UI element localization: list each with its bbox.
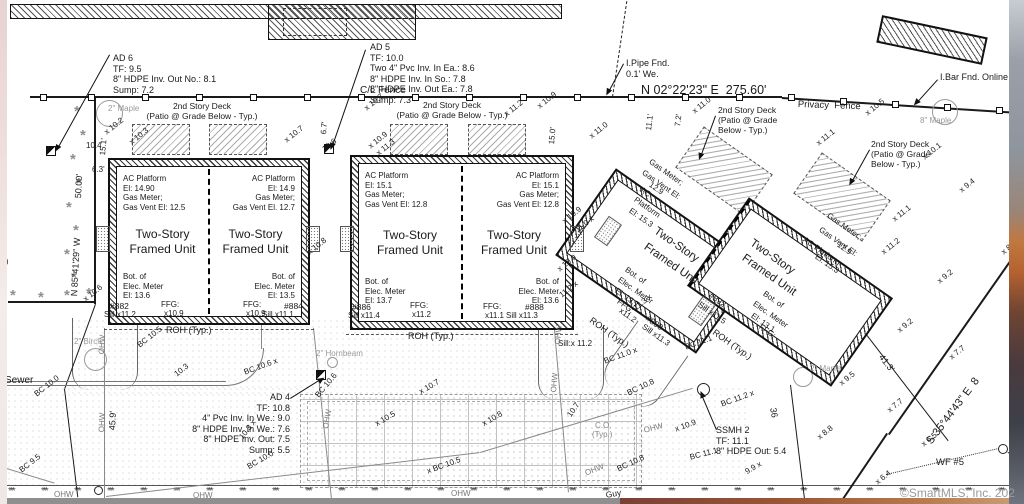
unit-888: AC PlatformEl: 15.1Gas Meter;Gas Vent El… — [463, 164, 565, 321]
text-line: TF: 10.0 — [370, 53, 475, 64]
map-label: Sill x11.1 — [262, 311, 294, 319]
text-line: Gas Vent El: 12.8 — [469, 200, 559, 210]
deck-label: 2nd Story Deck(Patio @ Grade Below - Typ… — [116, 101, 288, 121]
map-label: ROH (Typ.) — [408, 332, 454, 341]
property-tie-line — [612, 1, 627, 97]
grass-icon: *** — [404, 487, 410, 497]
map-label: FFG: — [483, 303, 501, 311]
map-label: x 10.7 — [283, 125, 305, 145]
sewer-line — [0, 381, 226, 386]
annotation-ad5: AD 5TF: 10.0Two 4" Pvc Inv. In Ea.: 8.68… — [370, 42, 475, 106]
text-line: Elec. Meter — [365, 287, 455, 297]
existing-deck-outline — [283, 8, 347, 36]
map-label: FFG: — [161, 301, 179, 309]
map-label: FFG: — [410, 302, 428, 310]
unit-name: Two-StoryFramed Unit — [216, 227, 295, 257]
map-label: 7.2' — [674, 113, 683, 127]
annotation-ad4: AD 4TF: 10.84" Pvc Inv. In We.: 9.08" HD… — [172, 392, 290, 456]
fence-post-icon — [88, 94, 95, 101]
text-line: Framed Unit — [216, 242, 295, 257]
text-line: Two-Story — [123, 227, 202, 242]
text-line: SSMH 2 — [716, 425, 786, 436]
map-label: ROH (Typ.) — [711, 328, 753, 361]
map-label: OHW — [98, 334, 107, 354]
text-line: AD 5 — [370, 42, 475, 53]
leader-arrow — [915, 79, 938, 104]
text-line: 0.1' We. — [626, 69, 670, 80]
text-line: 8" HDPE Inv. Out No.: 8.1 — [113, 74, 216, 85]
tree-label: 2" Maple — [810, 365, 841, 373]
annotation-ibar: I.Bar Fnd. Online — [940, 72, 1008, 83]
tree-label: 2" Hornbeam — [316, 350, 363, 358]
map-label: 45.9' — [108, 411, 118, 431]
map-label: x11.2 — [412, 311, 431, 319]
text-line: Gas Meter; — [365, 190, 455, 200]
map-label: Sill x11.2 — [104, 311, 136, 319]
map-label: x 9.2 — [896, 317, 915, 334]
text-line: (Patio @ Grade Below - Typ.) — [116, 111, 288, 121]
grass-icon: *** — [503, 487, 509, 497]
grass-icon: *** — [767, 487, 773, 497]
unit-884: AC PlatformEl: 14.9Gas Meter;Gas Vent El… — [210, 167, 301, 316]
utility-pole — [94, 486, 103, 495]
lot-line — [790, 385, 806, 504]
ac-platform-note: AC PlatformEl: 15.1Gas Meter;Gas Vent El… — [469, 171, 559, 209]
south-hedge-line — [8, 301, 96, 303]
map-label: x 11.0 — [588, 121, 610, 140]
elec-meter-note: Bot. ofElec. MeterEl: 13.5 — [216, 272, 295, 301]
iron-pin — [998, 444, 1008, 454]
building-882-884: AC PlatformEl: 14.90Gas Meter;Gas Vent E… — [108, 158, 310, 325]
text-line: 4" Pvc Inv. In We.: 9.0 — [172, 413, 290, 424]
text-line: AC Platform — [469, 171, 559, 181]
text-line: Bot. of — [123, 272, 202, 282]
bearing-west: N 85°41'29" W — [70, 238, 82, 297]
text-line: AD 4 — [172, 392, 290, 403]
unit-886: AC PlatformEl: 15.1Gas Meter;Gas Vent El… — [359, 164, 461, 321]
text-line: 2nd Story Deck — [718, 105, 777, 115]
grass-icon: *** — [701, 487, 707, 497]
roof-overhang-line — [346, 334, 578, 335]
grass-icon: *** — [635, 487, 641, 497]
map-label: x 10.5 — [864, 98, 886, 118]
watermark: ©SmartMLS, Inc. 202 — [900, 486, 1015, 500]
text-line: (Patio @ Grade — [718, 115, 777, 125]
text-line: TF: 10.8 — [172, 403, 290, 414]
text-line: AC Platform — [365, 171, 455, 181]
text-line: Framed Unit — [123, 242, 202, 257]
map-label: 12.9 — [835, 241, 852, 256]
ac-platform-pad — [340, 226, 354, 252]
road-edge-line — [0, 485, 1024, 486]
text-line: Framed Unit — [469, 243, 559, 258]
adjacent-photo-right-edge — [1009, 0, 1024, 504]
unit-name: Two-StoryFramed Unit — [123, 227, 202, 257]
map-label: x 6.4 — [874, 469, 893, 486]
text-line: Elec. Meter — [469, 287, 559, 297]
cl-fence-label: C/L Fence — [360, 86, 406, 96]
privacy-fence-label: Privacy Fence — [798, 100, 861, 112]
map-label: 50.00' — [74, 174, 84, 199]
text-line: Gas Meter; — [123, 193, 202, 203]
text-line: Gas Vent El: 12.8 — [365, 200, 455, 210]
ac-platform-note: AC PlatformEl: 15.1Gas Meter;Gas Vent El… — [365, 171, 455, 209]
road-surface — [0, 498, 620, 504]
map-label: OHW — [451, 490, 471, 498]
shrub-icon: * — [70, 152, 76, 167]
map-label: (Typ.) — [592, 431, 612, 439]
text-line: Bot. of — [365, 277, 455, 287]
map-label: 11.1' — [645, 114, 655, 131]
west-boundary-line — [94, 98, 96, 304]
text-line: Elec. Meter — [216, 282, 295, 292]
text-line: I.Pipe Fnd. — [626, 58, 670, 69]
building-interior: AC PlatformEl: 14.90Gas Meter;Gas Vent E… — [116, 166, 302, 317]
text-line: 2nd Story Deck — [116, 101, 288, 111]
text-line: Gas Vent El: 12.5 — [123, 203, 202, 213]
text-line: AD 6 — [113, 53, 216, 64]
annotation-ad6: AD 6TF: 9.58" HDPE Inv. Out No.: 8.1Sump… — [113, 53, 216, 95]
map-label: 36 — [768, 407, 779, 418]
shrub-icon: * — [66, 200, 72, 215]
bearing-north: N 02°22'23" E 275.60' — [641, 84, 766, 97]
unit-name: Two-StoryFramed Unit — [365, 228, 455, 258]
text-line: Two-Story — [365, 228, 455, 243]
grass-icon: *** — [833, 487, 839, 497]
text-line: Bot. of — [216, 272, 295, 282]
grass-icon: *** — [8, 487, 14, 497]
southeast-boundary-line — [840, 433, 888, 503]
text-line: Two-Story — [469, 228, 559, 243]
map-label: OHW — [54, 491, 74, 499]
tree-label: 2" Maple — [108, 105, 139, 113]
map-label: x 11.1 — [815, 128, 837, 147]
text-line: El: 15.1 — [469, 181, 559, 191]
text-line: Gas Meter; — [216, 193, 295, 203]
text-line: Gas Vent El. 12.7 — [216, 203, 295, 213]
deck-outline — [390, 124, 448, 155]
text-line: TF: 9.5 — [113, 64, 216, 75]
annotation-ipipe: I.Pipe Fnd.0.1' We. — [626, 58, 670, 79]
map-label: x10.9 — [164, 310, 184, 318]
shrub-icon: * — [80, 128, 86, 143]
grass-icon: *** — [371, 487, 377, 497]
map-label: 6.3' — [92, 166, 105, 174]
text-line: Sump: 7.2 — [113, 85, 216, 96]
tree-label: 8" Maple — [920, 117, 951, 125]
text-line: Framed Unit — [365, 243, 455, 258]
shrub-icon: * — [64, 247, 70, 262]
text-line: 8" HDPE Out: 5.4 — [716, 446, 786, 457]
ac-platform-note: AC PlatformEl: 14.90Gas Meter;Gas Vent E… — [123, 174, 202, 212]
map-label: x 10.9 — [536, 91, 558, 111]
text-line: AC Platform — [216, 174, 295, 184]
text-line: Bot. of — [469, 277, 559, 287]
tree-icon — [327, 357, 338, 368]
map-label: Sill x11.3 — [506, 312, 538, 320]
text-line: El: 15.1 — [365, 181, 455, 191]
grass-icon: *** — [668, 487, 674, 497]
fence-post-icon — [628, 94, 635, 101]
text-line: AC Platform — [123, 174, 202, 184]
map-label: x 8.8 — [816, 424, 835, 441]
sewer-label: Sewer — [5, 376, 33, 386]
text-line: Two 4" Pvc Inv. In Ea.: 8.6 — [370, 63, 475, 74]
text-line: 8" HDPE Inv. In We.: 7.6 — [172, 424, 290, 435]
text-line: Two-Story — [216, 227, 295, 242]
text-line: El: 14.90 — [123, 184, 202, 194]
map-label: x 11.0 — [691, 96, 713, 115]
grass-icon: *** — [305, 487, 311, 497]
text-line: 8" HDPE Inv. Out: 7.5 — [172, 434, 290, 445]
fence-post-icon — [892, 101, 899, 108]
map-label: ROH (Typ.) — [166, 326, 212, 335]
ac-platform-pad — [96, 226, 110, 252]
grass-icon: *** — [239, 487, 245, 497]
unit-name: Two-StoryFramed Unit — [469, 228, 559, 258]
grass-icon: *** — [338, 487, 344, 497]
map-label: x 11.1 — [891, 204, 913, 223]
deck-label: 2nd Story Deck(Patio @ GradeBelow - Typ.… — [718, 105, 777, 135]
driveway-curb — [538, 325, 604, 400]
fence-post-icon — [40, 94, 47, 101]
text-line: TF: 11.1 — [716, 436, 786, 447]
map-label: x 9.4 — [958, 177, 977, 194]
annotation-ssmh2: SSMH 2TF: 11.18" HDPE Out: 5.4 — [716, 425, 786, 457]
grass-icon: *** — [437, 487, 443, 497]
fence-post-icon — [574, 94, 581, 101]
wetland-flag-label: WF #5 — [936, 458, 964, 468]
map-label: x11.1 — [485, 312, 504, 320]
text-line: Elec. Meter — [123, 282, 202, 292]
shrub-icon: * — [73, 223, 79, 238]
text-line: Gas Meter; — [469, 190, 559, 200]
unit-882: AC PlatformEl: 14.90Gas Meter;Gas Vent E… — [117, 167, 208, 316]
fence-post-icon — [788, 94, 795, 101]
grass-icon: *** — [866, 487, 872, 497]
site-plan-drawing: AC PlatformEl: 14.90Gas Meter;Gas Vent E… — [0, 0, 1024, 504]
text-line: I.Bar Fnd. Online — [940, 72, 1008, 83]
text-line: 8" HDPE Inv. In So.: 7.8 — [370, 74, 475, 85]
map-label: 6.7' — [320, 121, 329, 134]
map-label: C.O. — [595, 422, 611, 430]
map-label: OHW — [550, 373, 560, 393]
text-line: Below - Typ.) — [718, 125, 777, 135]
adjacent-photo-left-edge — [0, 0, 7, 504]
map-label: OHW — [554, 325, 564, 345]
map-label: x 7.7 — [886, 397, 905, 414]
map-label: 15.0' — [548, 127, 557, 145]
map-label: x 9.2 — [936, 268, 955, 285]
text-line: 2nd Story Deck — [871, 139, 930, 149]
elec-meter-note: Bot. ofElec. MeterEl: 13.6 — [123, 272, 202, 301]
fence-post-icon — [304, 94, 311, 101]
fence-post-icon — [996, 107, 1003, 114]
grass-icon: *** — [41, 487, 47, 497]
grass-icon: *** — [734, 487, 740, 497]
building-interior: AC PlatformEl: 15.1Gas Meter;Gas Vent El… — [358, 163, 566, 322]
deck-outline — [209, 124, 267, 155]
grass-icon: *** — [536, 487, 542, 497]
map-label: FFG: — [243, 301, 261, 309]
grass-icon: *** — [272, 487, 278, 497]
map-label: x 11.2 — [880, 237, 902, 256]
map-label: Sill x11.4 — [348, 312, 380, 320]
grass-icon: *** — [569, 487, 575, 497]
existing-building-northeast — [876, 15, 987, 65]
text-line: Below - Typ.) — [871, 159, 930, 169]
map-label: OHW — [193, 492, 213, 500]
map-label: 10.4 — [86, 142, 102, 150]
map-label: OHW — [98, 412, 107, 432]
deck-outline — [468, 124, 526, 155]
ac-platform-note: AC PlatformEl: 14.9Gas Meter;Gas Vent El… — [216, 174, 295, 212]
map-label: Sill:x 11.2 — [558, 340, 592, 348]
text-line: El: 14.9 — [216, 184, 295, 194]
deck-outline — [675, 126, 772, 215]
fence-post-icon — [250, 94, 257, 101]
